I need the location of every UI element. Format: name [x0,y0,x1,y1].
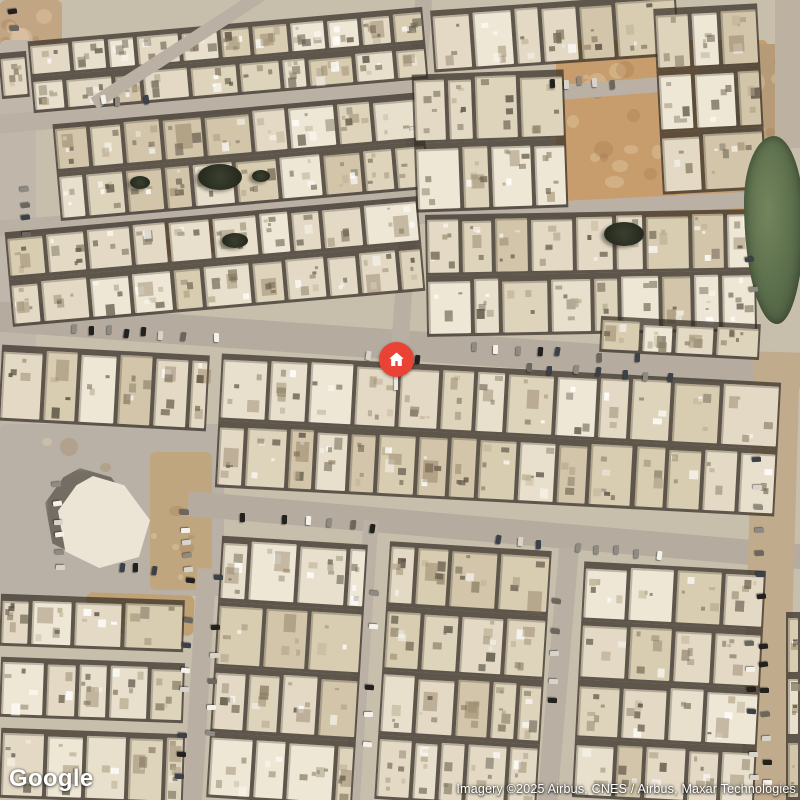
building [589,444,633,506]
car [175,773,184,778]
roof-detail [493,31,499,36]
roof-detail [720,143,726,150]
ground-texture [178,574,184,580]
building [388,547,415,605]
roof-detail [489,640,496,645]
roof-detail [666,82,671,87]
car [107,325,112,334]
roof-detail [85,87,93,97]
building [280,675,317,735]
roof-detail [388,222,393,227]
building [216,606,263,666]
satellite-map-canvas[interactable]: Google Imagery ©2025 Airbus, CNES / Airb… [0,0,800,800]
courtyard [423,460,438,482]
roof-detail [483,444,492,452]
roof-detail [735,297,741,303]
roof-detail [524,691,531,697]
roof-detail [522,39,529,44]
roof-detail [486,758,495,769]
roof-detail [111,780,118,788]
building [279,154,322,199]
building [692,214,724,268]
roof-detail [600,457,607,462]
roof-detail [69,752,76,756]
building [629,568,674,622]
building [490,682,517,740]
roof-detail [687,576,695,584]
roof-detail [411,29,416,33]
courtyard [175,123,193,149]
tree-cluster [222,233,248,248]
roof-detail [58,694,65,702]
roof-detail [222,142,230,151]
roof-detail [701,52,710,58]
roof-detail [386,787,391,791]
roof-detail [711,99,720,110]
car [55,550,64,555]
courtyard [86,687,99,707]
roof-detail [471,720,478,728]
roof-detail [59,613,63,617]
courtyard [483,389,494,402]
roof-detail [357,442,362,446]
roof-detail [341,35,346,42]
roof-detail [70,293,74,297]
courtyard [20,372,30,381]
roof-detail [390,653,397,660]
roof-detail [637,667,646,674]
building [472,11,514,67]
roof-detail [342,175,349,183]
car [364,712,373,717]
roof-detail [520,36,524,39]
roof-detail [471,582,480,593]
car [656,550,662,560]
roof-detail [494,53,502,62]
roof-detail [328,386,335,391]
roof-detail [565,488,574,496]
building-row [0,345,210,432]
roof-detail [330,61,340,72]
roof-detail [523,753,528,759]
building [723,574,764,627]
building [150,669,182,720]
roof-detail [649,281,657,288]
roof-detail [341,126,347,130]
building [153,359,188,427]
building [204,263,252,306]
building [288,104,335,149]
roof-detail [156,301,165,309]
roof-detail [634,41,638,45]
roof-detail [601,651,610,661]
roof-detail [333,26,340,32]
building [363,149,395,192]
roof-detail [524,639,531,645]
car [537,347,543,356]
ground-texture [644,168,657,180]
roof-detail [405,641,413,651]
roof-detail [192,133,202,144]
courtyard [226,274,238,290]
building [702,450,737,511]
building-row [414,138,568,212]
building [576,217,613,270]
roof-detail [401,27,409,33]
courtyard [605,325,617,342]
building [288,429,315,489]
roof-detail [340,162,344,167]
city-block [412,69,569,212]
roof-detail [399,480,403,485]
building [531,219,573,271]
roof-detail [683,703,691,709]
roof-detail [679,150,684,154]
courtyard [222,683,229,693]
roof-detail [342,66,349,75]
roof-detail [145,638,152,645]
car [753,485,762,490]
roof-detail [715,485,723,494]
roof-detail [22,359,26,364]
building [662,137,701,192]
building [74,603,121,647]
courtyard [340,769,354,787]
roof-detail [313,381,318,386]
building [788,618,798,672]
roof-detail [372,154,376,158]
roof-detail [304,224,313,234]
roof-detail [514,773,518,778]
car [9,26,18,31]
roof-detail [150,125,158,133]
courtyard [369,376,377,387]
roof-detail [257,439,265,444]
roof-detail [536,562,545,568]
roof-detail [695,218,699,221]
building [291,211,321,252]
building [634,446,665,507]
building [355,50,395,81]
roof-detail [410,267,414,271]
roof-detail [101,189,105,194]
roof-detail [729,330,734,337]
building [580,625,627,679]
roof-detail [431,251,440,260]
roof-detail [442,234,447,239]
roof-detail [212,84,216,87]
car [176,752,185,757]
roof-detail [455,567,463,574]
building [252,24,288,55]
roof-detail [710,291,716,296]
car [180,510,189,515]
building [290,20,325,51]
roof-detail [506,108,513,114]
building [551,279,591,332]
roof-detail [700,767,703,771]
roof-detail [702,231,706,234]
roof-detail [673,479,678,483]
courtyard [393,215,410,237]
roof-detail [20,705,28,710]
building [415,679,455,736]
roof-detail [571,298,578,307]
building [675,570,722,624]
roof-detail [149,747,156,753]
building [205,114,252,156]
roof-detail [544,395,549,399]
ground-texture [594,141,613,158]
car [54,520,63,525]
roof-detail [653,640,662,652]
car [745,641,754,646]
car [350,520,356,529]
roof-detail [570,387,575,392]
building [498,554,549,612]
roof-detail [231,705,239,713]
building [11,284,41,324]
roof-detail [731,591,738,600]
building-row [786,675,800,738]
roof-detail [650,752,659,758]
roof-detail [296,239,304,245]
roof-detail [708,732,712,735]
roof-detail [241,169,248,174]
roof-detail [107,230,113,236]
roof-detail [234,553,243,562]
google-logo[interactable]: Google [9,765,93,793]
roof-detail [501,714,510,724]
car [548,698,557,703]
roof-detail [444,625,453,633]
roof-detail [58,744,63,747]
location-marker[interactable] [379,342,414,394]
roof-detail [131,376,136,382]
roof-detail [703,394,712,403]
car [205,730,214,736]
roof-detail [390,627,399,637]
roof-detail [68,202,72,205]
courtyard [53,294,62,304]
building [601,320,640,351]
roof-detail [419,712,423,715]
building-row [656,65,763,132]
roof-detail [288,682,293,685]
roof-detail [584,44,592,50]
roof-detail [21,668,25,674]
roof-detail [375,65,382,70]
car [551,628,561,634]
building [788,679,798,734]
roof-detail [403,206,410,212]
building-row [0,594,185,652]
roof-detail [742,434,749,442]
building [208,738,252,797]
building [282,58,307,88]
courtyard [295,441,309,461]
roof-detail [51,245,60,256]
courtyard [131,613,141,621]
roof-detail [186,282,193,289]
car [180,687,189,693]
building [737,70,761,125]
roof-detail [600,768,605,773]
roof-detail [168,126,172,131]
roof-detail [516,230,520,233]
roof-detail [511,255,515,259]
courtyard [276,383,287,394]
courtyard [527,591,543,614]
roof-detail [387,409,393,416]
roof-detail [66,397,71,400]
roof-detail [39,84,47,95]
car [181,667,191,673]
roof-detail [456,398,462,404]
roof-detail [42,98,50,106]
roof-detail [268,216,276,222]
courtyard [672,454,678,461]
building [90,125,124,167]
roof-detail [594,257,598,261]
roof-detail [294,472,300,480]
roof-detail [312,271,317,274]
roof-detail [20,614,29,623]
roof-detail [299,774,308,780]
roof-detail [268,130,271,133]
city-block [0,594,185,652]
roof-detail [753,581,756,585]
roof-detail [495,375,503,381]
roof-detail [263,220,267,223]
roof-detail [478,664,485,672]
building [555,377,597,437]
roof-detail [302,39,311,46]
roof-detail [93,281,99,286]
building [459,617,504,674]
building [514,8,541,64]
car [668,373,674,382]
building [414,79,446,140]
roof-detail [281,646,290,656]
building [259,212,290,255]
roof-detail [87,385,92,390]
roof-detail [569,466,575,474]
car [756,572,765,577]
roof-detail [420,747,428,756]
ground-texture [605,176,624,188]
car [208,679,217,684]
building [630,379,671,440]
building [7,236,45,276]
roof-detail [386,254,392,260]
building [327,256,358,296]
car [365,684,374,690]
building [322,208,363,249]
roof-detail [174,229,183,236]
roof-detail [236,119,245,126]
roof-detail [592,36,598,43]
roof-detail [525,699,532,705]
roof-detail [725,85,731,93]
ground-texture [42,438,52,447]
building [253,740,285,798]
roof-detail [207,43,217,52]
car [750,775,759,780]
roof-detail [703,43,708,48]
roof-detail [328,460,335,464]
building [30,42,71,74]
roof-detail [18,75,23,82]
roof-detail [372,256,381,267]
building [720,9,758,64]
courtyard [261,278,278,296]
roof-detail [235,589,240,594]
courtyard [223,447,240,467]
roof-detail [398,766,405,772]
building [117,355,153,425]
building [421,614,458,671]
courtyard [396,567,403,575]
building [323,153,362,195]
roof-detail [739,278,743,284]
roof-detail [352,564,358,571]
roof-detail [528,720,538,733]
courtyard [609,407,619,418]
car [182,539,191,545]
ground-texture [172,544,179,549]
roof-detail [113,669,120,677]
building [449,437,477,498]
building [380,674,414,733]
roof-detail [221,654,229,662]
roof-detail [18,288,24,293]
roof-detail [528,52,535,59]
roof-detail [539,489,548,499]
building [248,542,297,603]
courtyard [742,585,749,592]
building [716,327,758,357]
building [1,662,44,715]
roof-detail [391,616,398,624]
car [151,566,157,576]
roof-detail [21,246,27,251]
roof-detail [301,286,310,295]
building [318,679,358,737]
building [363,201,419,245]
car [214,575,223,580]
building-row [214,601,364,675]
roof-detail [399,173,405,178]
roof-detail [50,239,54,243]
roof-detail [460,110,464,113]
courtyard [247,400,260,412]
roof-detail [429,199,435,205]
roof-detail [464,478,468,483]
roof-detail [412,18,421,26]
building [336,102,372,145]
roof-detail [410,258,414,263]
roof-detail [524,379,529,383]
roof-detail [740,17,747,22]
roof-detail [394,590,399,596]
roof-detail [398,468,406,476]
building [376,739,411,798]
roof-detail [272,440,280,446]
building [217,427,244,485]
roof-detail [41,50,49,57]
car [20,202,30,208]
